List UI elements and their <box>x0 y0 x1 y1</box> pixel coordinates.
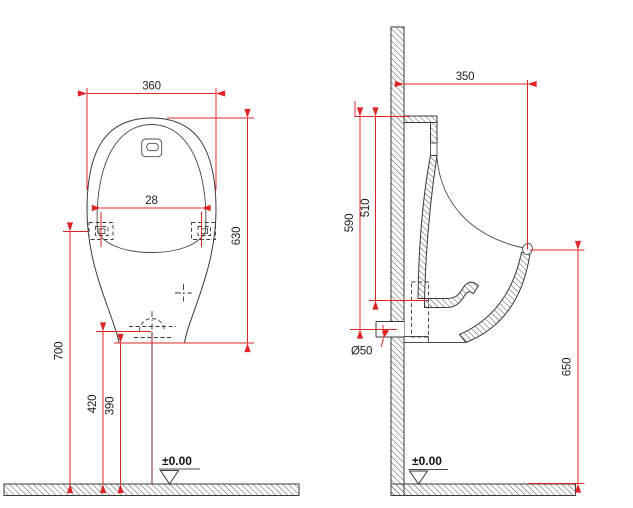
urinal-shell-section <box>460 253 531 343</box>
datum-label-side: ±0.00 <box>412 454 442 468</box>
side-view: ±0.00 <box>376 27 576 496</box>
dim-label-top-to-outlet: 590 <box>344 214 356 233</box>
inlet-connector <box>431 143 438 156</box>
dim-label-outlet-diameter: Ø50 <box>351 346 372 358</box>
dim-label-depth: 350 <box>456 71 475 83</box>
datum-symbol-front <box>159 469 200 484</box>
floor-section-side <box>391 484 576 496</box>
technical-drawing-canvas: ±0.00 <box>0 0 633 508</box>
trap-section <box>425 282 479 307</box>
front-view: ±0.00 <box>4 118 299 496</box>
wall-section <box>391 27 404 496</box>
center-mark <box>175 284 192 302</box>
dim-label-outlet-to-floor: 420 <box>87 395 99 414</box>
dim-label-top-to-bowl: 510 <box>360 199 372 218</box>
dimension-lines <box>63 80 585 484</box>
sensor-eye <box>147 143 159 150</box>
dim-label-mount-holes: 28 <box>145 195 157 207</box>
mounting-hole-right <box>192 223 216 240</box>
datum-label-front: ±0.00 <box>162 454 192 468</box>
urinal-back-section <box>418 156 437 299</box>
urinal-outline-front <box>87 118 216 343</box>
dim-label-height: 630 <box>231 227 243 246</box>
technical-drawing-page: ±0.00 <box>0 0 633 508</box>
dim-label-holes-to-floor: 700 <box>54 342 66 361</box>
dimension-labels: 360 28 630 700 420 390 350 590 510 Ø50 6… <box>54 71 574 415</box>
bowl-interior-curve <box>437 158 526 249</box>
floor-section-front <box>4 484 299 496</box>
datum-symbol-side <box>409 470 449 485</box>
inlet-pipe-vertical <box>431 123 438 144</box>
dim-label-bottom-to-floor: 390 <box>105 397 117 416</box>
dim-label-width: 360 <box>142 81 161 93</box>
leader-line-dia50 <box>381 339 384 348</box>
dim-label-rim-to-floor: 650 <box>562 358 574 377</box>
